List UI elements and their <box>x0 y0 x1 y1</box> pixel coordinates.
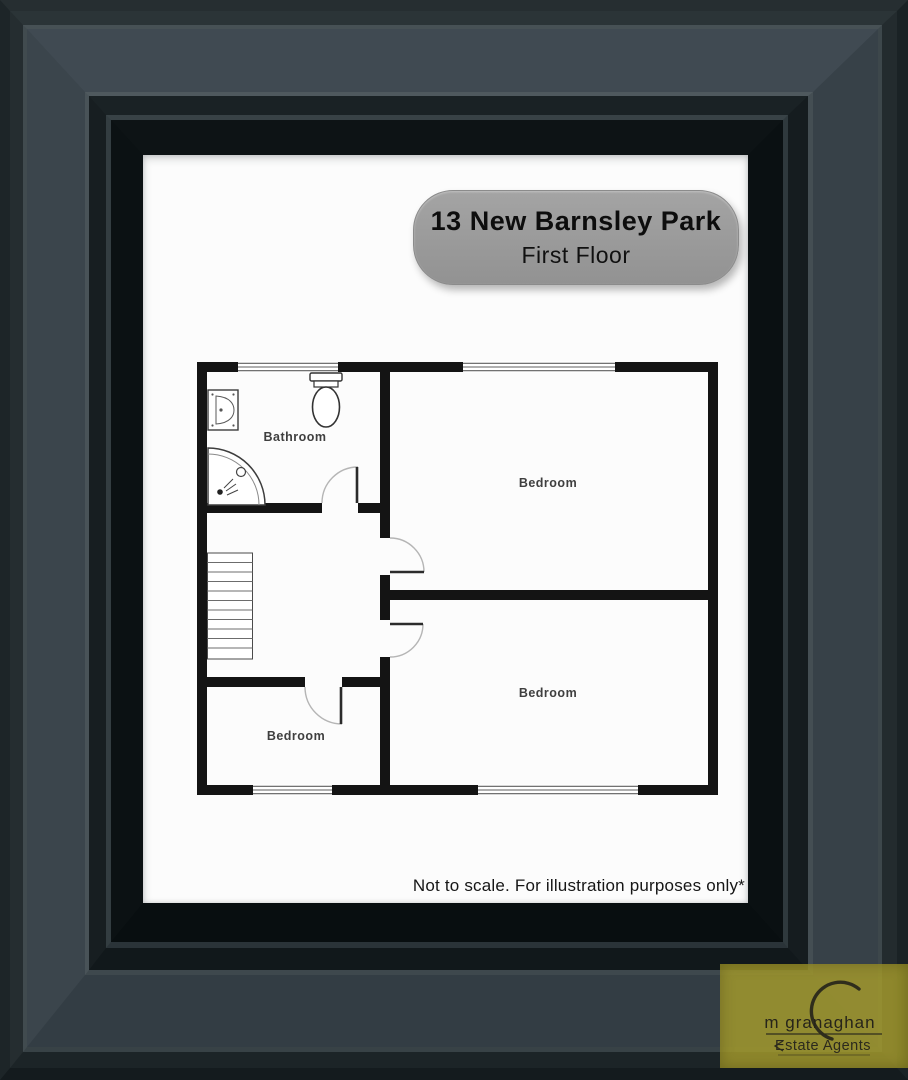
sink-icon <box>208 390 238 430</box>
brand-tagline: Estate Agents <box>775 1038 871 1054</box>
toilet-icon <box>310 373 342 427</box>
frame-face: 13 New Barnsley Park First Floor <box>27 29 878 1047</box>
stairs-icon <box>208 553 253 659</box>
frame-ridge: 13 New Barnsley Park First Floor <box>23 25 882 1052</box>
disclaimer-text: Not to scale. For illustration purposes … <box>413 876 745 896</box>
shower-icon <box>208 448 265 505</box>
frame-ridge-inner2: 13 New Barnsley Park First Floor <box>106 115 788 948</box>
door-icon-bedroom-bottom-left <box>305 687 342 724</box>
window-icon <box>463 362 615 373</box>
room-label-bedroom-bottom-left: Bedroom <box>267 729 325 743</box>
floorplan-mat: 13 New Barnsley Park First Floor <box>143 155 748 903</box>
room-label-bedroom-top-right: Bedroom <box>519 476 577 490</box>
frame-moulding: 13 New Barnsley Park First Floor <box>10 11 897 1068</box>
window-icon <box>253 785 332 796</box>
door-icon-bedroom-top-right <box>390 538 424 572</box>
door-icon-bedroom-bottom-right <box>390 624 423 657</box>
framed-floorplan-photo: 13 New Barnsley Park First Floor <box>0 0 908 1080</box>
agency-logo: m granaghan Estate Agents <box>720 964 908 1068</box>
frame-inner-edge: 13 New Barnsley Park First Floor <box>111 120 783 942</box>
frame-ridge-inner: 13 New Barnsley Park First Floor <box>85 92 813 975</box>
room-label-bedroom-bottom-right: Bedroom <box>519 686 577 700</box>
room-label-bathroom: Bathroom <box>263 430 326 444</box>
door-icon-bathroom <box>322 467 358 503</box>
picture-frame: 13 New Barnsley Park First Floor <box>0 0 908 1080</box>
window-icon <box>238 362 338 373</box>
brand-name: m granaghan <box>764 1013 875 1032</box>
agency-logo-art: m granaghan Estate Agents <box>720 964 908 1068</box>
window-icon <box>478 785 638 796</box>
frame-band: 13 New Barnsley Park First Floor <box>89 96 808 970</box>
floor-plan: Bathroom Bedroom Bedroom Bedroom <box>143 155 748 903</box>
